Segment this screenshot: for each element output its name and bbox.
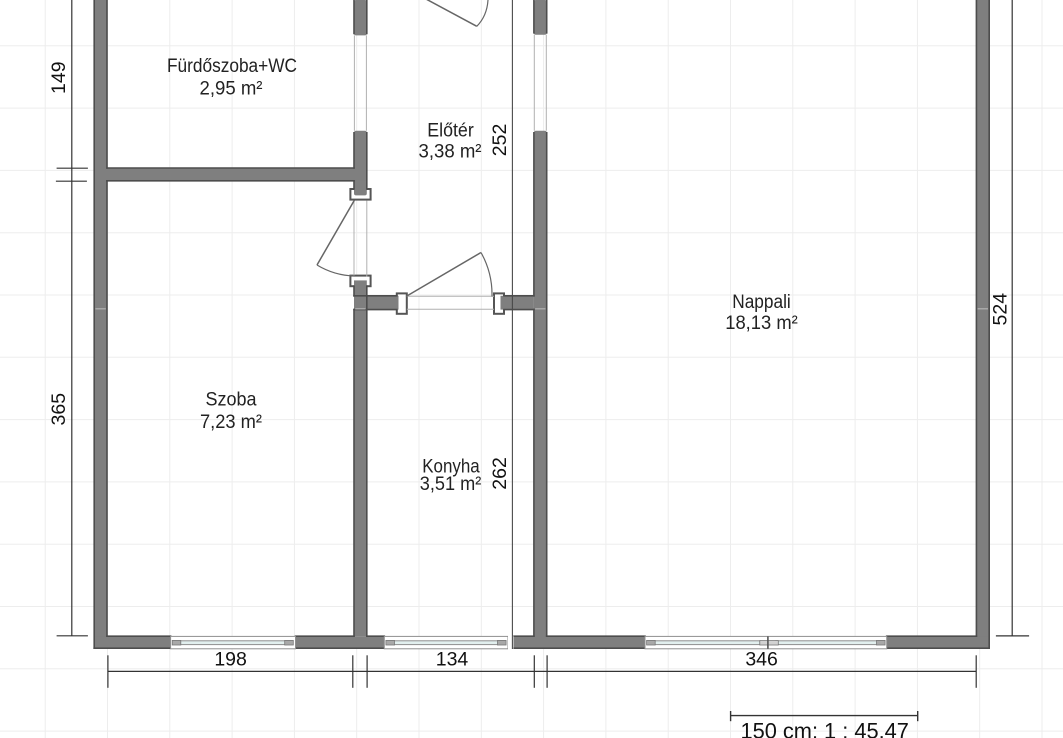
svg-text:346: 346 — [745, 649, 778, 671]
svg-text:252: 252 — [489, 124, 511, 157]
svg-text:Előtér: Előtér — [427, 120, 474, 141]
svg-text:134: 134 — [436, 649, 469, 671]
svg-text:198: 198 — [214, 649, 247, 671]
svg-text:2,95 m²: 2,95 m² — [200, 79, 263, 100]
svg-text:150 cm: 1 : 45.47: 150 cm: 1 : 45.47 — [740, 719, 908, 738]
svg-text:524: 524 — [990, 293, 1012, 326]
svg-text:Nappali: Nappali — [732, 292, 791, 313]
svg-text:149: 149 — [48, 61, 70, 94]
svg-text:7,23 m²: 7,23 m² — [200, 412, 262, 433]
svg-text:3,38 m²: 3,38 m² — [419, 141, 482, 162]
svg-text:Szoba: Szoba — [206, 390, 257, 411]
svg-text:365: 365 — [48, 393, 70, 426]
svg-text:Fürdőszoba+WC: Fürdőszoba+WC — [167, 56, 297, 77]
svg-text:18,13 m²: 18,13 m² — [725, 313, 798, 334]
svg-text:262: 262 — [489, 457, 511, 490]
svg-text:3,51 m²: 3,51 m² — [420, 474, 482, 495]
